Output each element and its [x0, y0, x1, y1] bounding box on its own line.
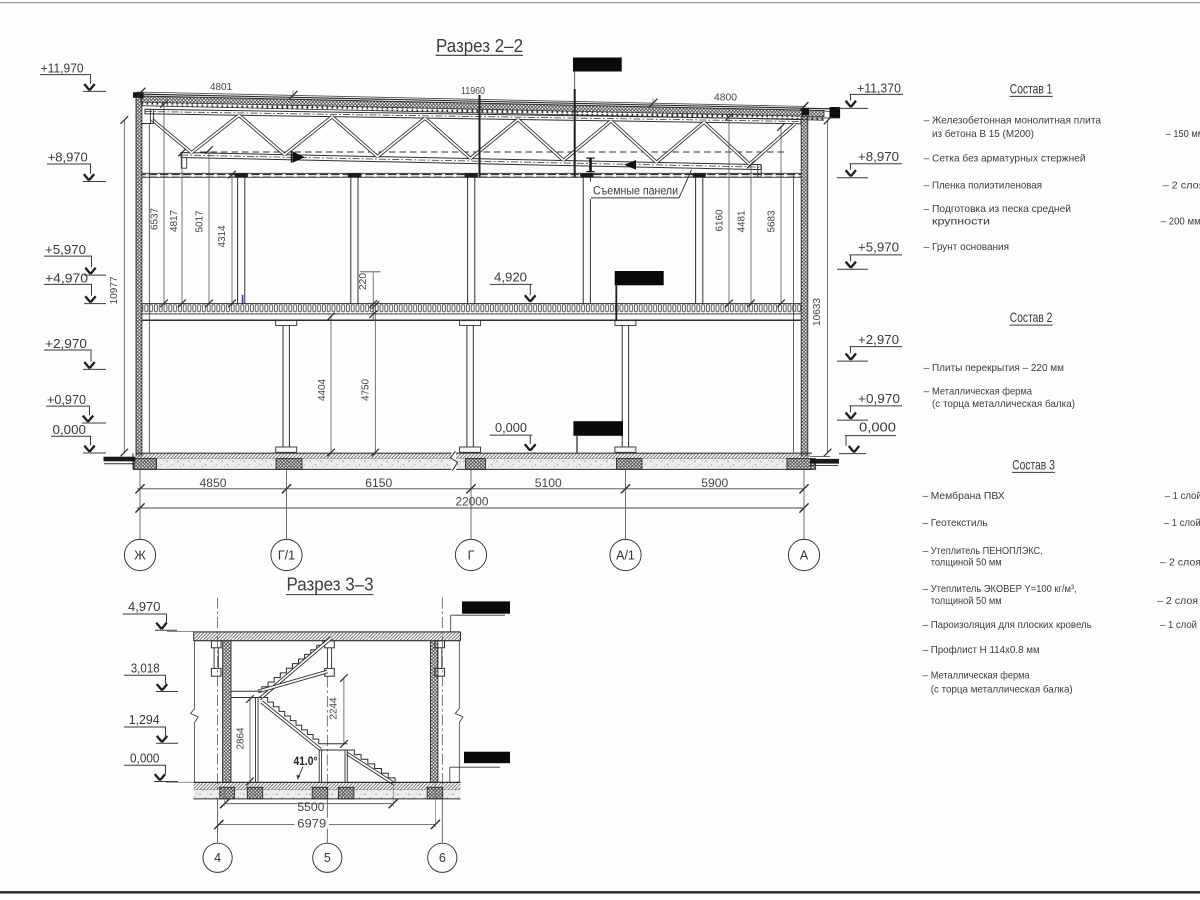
svg-text:+11,970: +11,970 — [41, 60, 84, 75]
svg-text:Состав 3: Состав 3 — [1012, 456, 1055, 472]
svg-text:4404: 4404 — [316, 379, 328, 401]
svg-text:+2,970: +2,970 — [45, 336, 87, 351]
svg-text:4,970: 4,970 — [128, 599, 161, 614]
svg-text:Разрез 3–3: Разрез 3–3 — [287, 574, 374, 595]
svg-text:(с торца металлическая балка): (с торца металлическая балка) — [932, 398, 1075, 410]
svg-text:6979: 6979 — [297, 816, 326, 830]
svg-text:– 2 слоя: – 2 слоя — [1157, 595, 1198, 607]
svg-text:6537: 6537 — [149, 208, 161, 230]
svg-text:+4,970: +4,970 — [45, 270, 88, 285]
svg-text:– 2 слоя: – 2 слоя — [1160, 556, 1200, 568]
svg-text:+8,970: +8,970 — [48, 150, 88, 165]
svg-text:0,000: 0,000 — [859, 420, 896, 435]
svg-text:–: – — [924, 362, 930, 374]
svg-text:Г: Г — [468, 549, 475, 563]
svg-text:+8,970: +8,970 — [858, 149, 899, 164]
svg-text:Мембрана ПВХ: Мембрана ПВХ — [931, 490, 1005, 502]
svg-text:1,294: 1,294 — [129, 712, 160, 727]
svg-text:Съемные панели: Съемные панели — [593, 184, 678, 198]
svg-text:4: 4 — [214, 851, 221, 865]
svg-text:3,018: 3,018 — [131, 660, 160, 675]
svg-text:4850: 4850 — [200, 476, 227, 490]
svg-text:Металлическая ферма: Металлическая ферма — [932, 386, 1032, 398]
svg-text:толщиной 50 мм: толщиной 50 мм — [931, 556, 1002, 568]
svg-text:5017: 5017 — [194, 210, 206, 232]
svg-text:–: – — [924, 203, 930, 215]
svg-text:5: 5 — [324, 851, 331, 865]
svg-text:–: – — [924, 241, 930, 253]
svg-text:2244: 2244 — [328, 697, 340, 719]
svg-text:4800: 4800 — [714, 93, 737, 104]
svg-text:+0,970: +0,970 — [47, 392, 86, 407]
svg-text:+0,970: +0,970 — [858, 391, 900, 406]
svg-text:–: – — [923, 644, 929, 656]
svg-text:Пароизоляция для плоских крове: Пароизоляция для плоских кровель — [931, 619, 1092, 631]
svg-text:+11,370: +11,370 — [857, 80, 901, 95]
svg-text:–: – — [923, 670, 929, 682]
svg-text:5683: 5683 — [766, 210, 778, 232]
svg-text:4,920: 4,920 — [494, 269, 527, 284]
svg-text:0,000: 0,000 — [130, 751, 160, 766]
svg-text:А: А — [800, 549, 809, 563]
svg-text:–: – — [923, 619, 929, 631]
svg-text:Плиты перекрытия – 220 мм: Плиты перекрытия – 220 мм — [932, 362, 1064, 374]
svg-text:11960: 11960 — [461, 86, 485, 97]
svg-text:– 200 мм: – 200 мм — [1161, 215, 1200, 227]
svg-text:Грунт основания: Грунт основания — [932, 241, 1009, 253]
svg-text:Сетка без арматурных стержней: Сетка без арматурных стержней — [932, 153, 1086, 165]
svg-text:Металлическая ферма: Металлическая ферма — [931, 670, 1030, 682]
svg-text:Г/1: Г/1 — [278, 549, 295, 563]
svg-text:+5,970: +5,970 — [858, 240, 899, 255]
svg-text:6160: 6160 — [714, 209, 726, 231]
svg-text:Пленка полиэтиленовая: Пленка полиэтиленовая — [932, 180, 1042, 192]
svg-text:Ж: Ж — [134, 549, 146, 563]
svg-text:Утеплитель ЭКОВЕР Y=100 кг/м³,: Утеплитель ЭКОВЕР Y=100 кг/м³, — [931, 583, 1077, 595]
svg-text:– 1 слой: – 1 слой — [1160, 619, 1197, 631]
svg-text:0,000: 0,000 — [495, 420, 527, 435]
svg-text:6150: 6150 — [365, 476, 392, 490]
svg-text:Профлист Н 114х0.8 мм: Профлист Н 114х0.8 мм — [931, 644, 1040, 656]
svg-text:0,000: 0,000 — [53, 422, 87, 437]
svg-text:Железобетонная монолитная пли: Железобетонная монолитная плита — [932, 115, 1101, 127]
svg-text:–: – — [923, 490, 929, 502]
svg-text:Разрез 2–2: Разрез 2–2 — [436, 35, 523, 56]
svg-text:Состав 2: Состав 2 — [1010, 309, 1053, 325]
svg-text:– 1 слой: – 1 слой — [1165, 490, 1200, 502]
svg-text:–: – — [924, 180, 930, 192]
svg-text:Утеплитель ПЕНОПЛЭКС,: Утеплитель ПЕНОПЛЭКС, — [931, 545, 1043, 557]
svg-text:(с торца металлическая балка): (с торца металлическая балка) — [931, 683, 1073, 695]
svg-text:толщиной 50 мм: толщиной 50 мм — [931, 595, 1002, 607]
svg-text:4801: 4801 — [210, 82, 232, 93]
svg-text:– 2 слоя: – 2 слоя — [1163, 180, 1200, 192]
svg-text:4750: 4750 — [360, 379, 372, 401]
svg-text:Подготовка из песка средней: Подготовка из песка средней — [932, 203, 1071, 215]
svg-text:5500: 5500 — [297, 800, 324, 814]
svg-text:–: – — [923, 517, 929, 529]
svg-text:10977: 10977 — [108, 276, 120, 304]
svg-text:22000: 22000 — [456, 494, 489, 508]
svg-text:– 150 мм: – 150 мм — [1166, 128, 1200, 140]
svg-text:2864: 2864 — [234, 727, 246, 749]
svg-text:–: – — [924, 115, 930, 127]
svg-text:из бетона В 15 (М200): из бетона В 15 (М200) — [932, 128, 1034, 140]
svg-text:Геотекстиль: Геотекстиль — [931, 517, 989, 529]
svg-text:крупности: крупности — [932, 215, 990, 227]
svg-text:4817: 4817 — [168, 210, 180, 232]
svg-text:–: – — [924, 386, 930, 398]
svg-text:–: – — [923, 545, 929, 557]
svg-text:220: 220 — [357, 273, 369, 290]
svg-text:10633: 10633 — [811, 298, 823, 326]
svg-text:Состав 1: Состав 1 — [1010, 80, 1053, 96]
svg-text:6: 6 — [439, 851, 446, 865]
svg-text:+5,970: +5,970 — [45, 242, 86, 257]
svg-text:А/1: А/1 — [616, 549, 635, 563]
svg-text:4481: 4481 — [736, 210, 748, 232]
svg-text:5100: 5100 — [535, 476, 562, 490]
svg-text:41.0°: 41.0° — [294, 756, 318, 768]
svg-text:+2,970: +2,970 — [858, 332, 899, 347]
svg-text:–: – — [923, 583, 929, 595]
svg-text:4314: 4314 — [216, 225, 228, 247]
svg-text:–: – — [924, 153, 930, 165]
svg-text:– 1 слой: – 1 слой — [1164, 517, 1200, 529]
svg-text:5900: 5900 — [701, 476, 728, 490]
